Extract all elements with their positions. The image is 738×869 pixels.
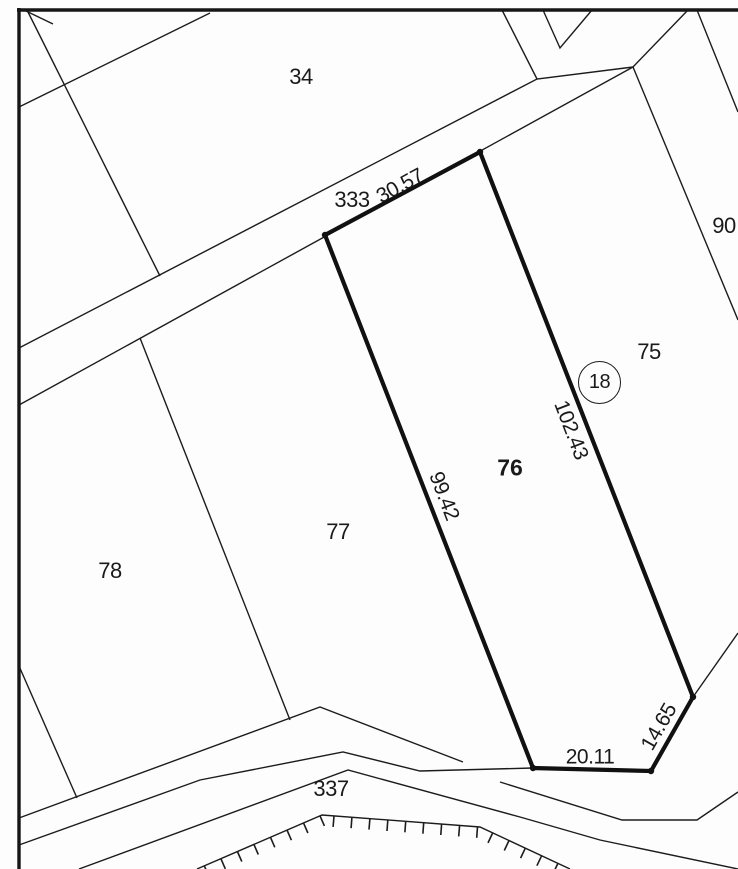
boundary-77-78: [140, 338, 290, 720]
map-linework: [0, 0, 738, 869]
cadastral-map: 34 333 30.57 90 75 18 102.43 76 99.42 77…: [0, 0, 738, 869]
boundary-34-left: [19, 13, 210, 107]
parcel-label-77: 77: [326, 521, 349, 543]
embankment-line: [197, 815, 570, 869]
parcel-label-34: 34: [289, 66, 312, 88]
road-337-north-line: [19, 752, 533, 845]
road-fork-wedge: [543, 10, 592, 48]
boundary-34-sliver: [27, 10, 160, 276]
parcel-label-90: 90: [712, 215, 735, 237]
parcel-label-76: 76: [497, 457, 523, 480]
parcel-label-78: 78: [98, 560, 121, 582]
road-label-333: 333: [334, 189, 369, 211]
road-label-337: 337: [313, 778, 348, 800]
dimension-bottom-edge: 20.11: [566, 747, 615, 768]
boundary-34-right: [502, 10, 537, 79]
survey-marker-18-number: 18: [589, 371, 610, 394]
parcel-label-75: 75: [637, 341, 660, 363]
boundary-78-south: [19, 666, 77, 798]
survey-marker-18: 18: [578, 361, 621, 404]
road-337-valley-line: [500, 782, 738, 820]
map-frame: [17, 8, 738, 869]
boundary-90-north: [697, 10, 738, 112]
boundary-lines: [19, 10, 738, 869]
road-337-north-line-east: [693, 633, 738, 697]
junction-north-line: [633, 10, 688, 67]
boundary-77-south: [19, 707, 463, 818]
boundary-75-90: [633, 67, 738, 320]
